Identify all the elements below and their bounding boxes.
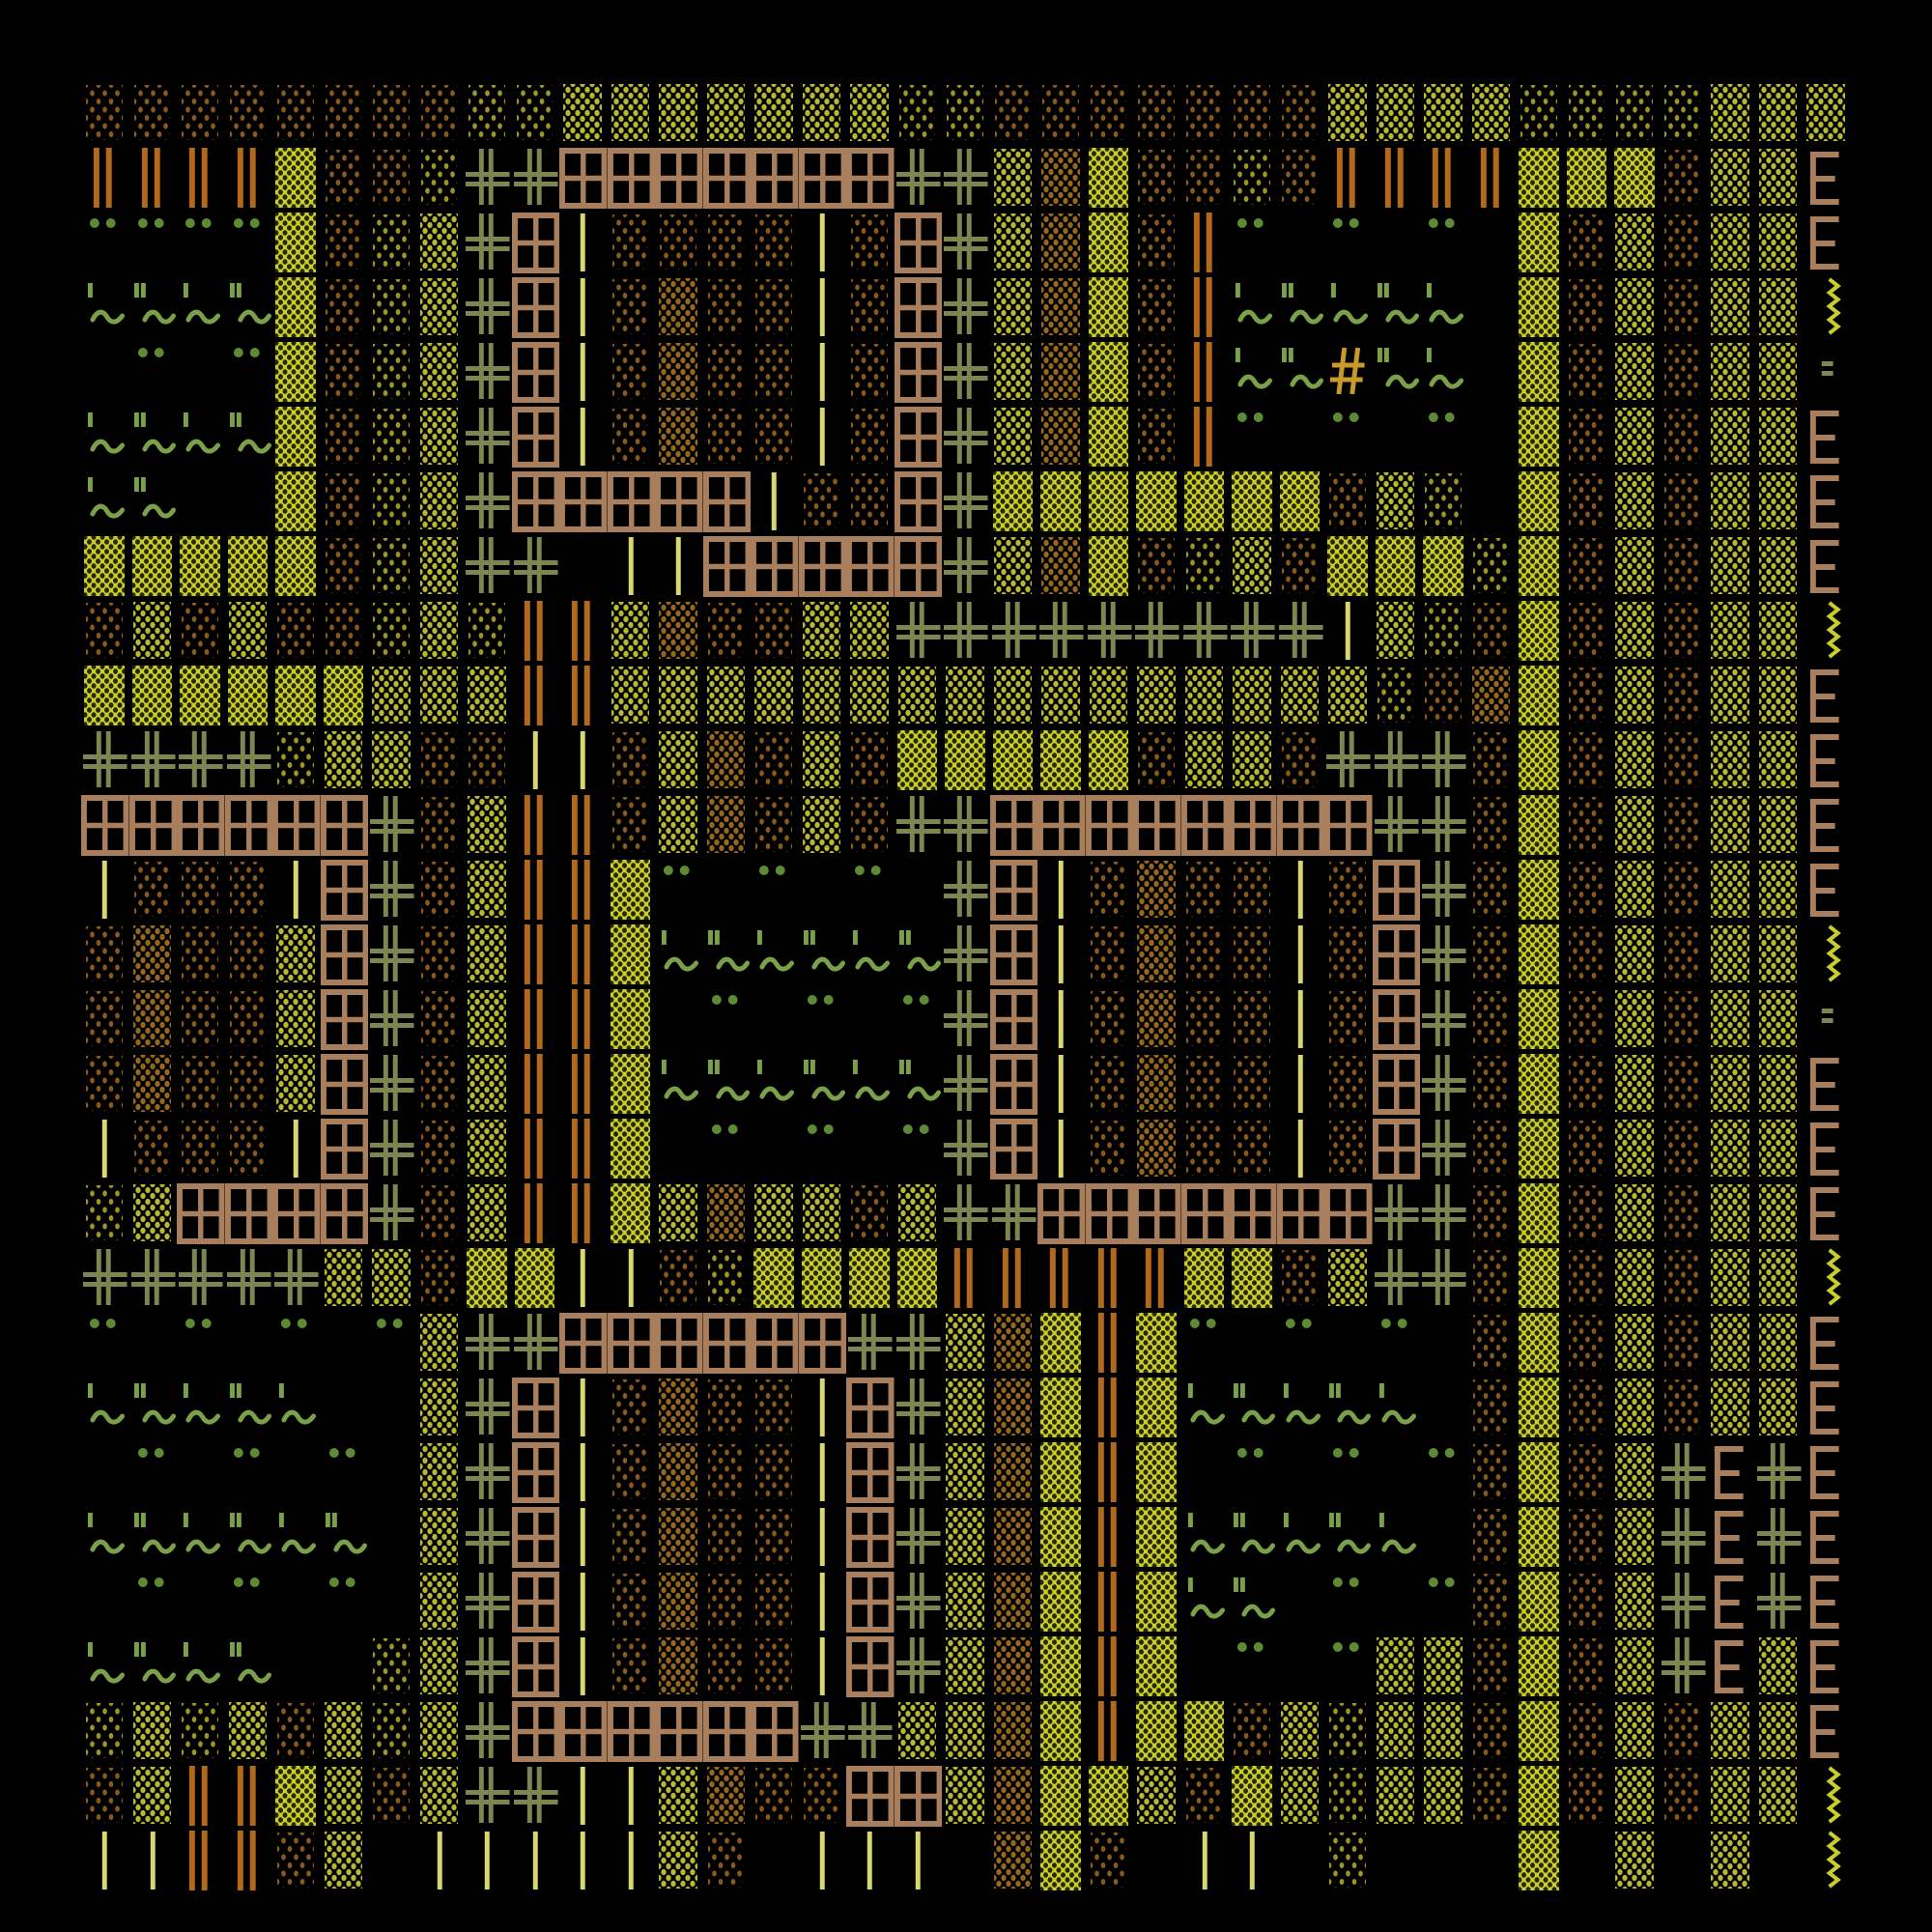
window-pane-tan-glyph	[1133, 1181, 1181, 1246]
window-pane-tan-glyph	[81, 793, 129, 858]
dots-sparse-brown-glyph	[1086, 923, 1134, 987]
dots-sparse-olive-glyph	[464, 599, 512, 664]
dots-sparse-brown-glyph	[1564, 469, 1612, 534]
wave-tick-tilde-glyph	[1181, 1505, 1230, 1570]
dots-sparse-brown-glyph	[608, 1440, 656, 1505]
dots-sparse-brown-glyph	[1420, 664, 1468, 728]
dots-med-yellow-glyph	[799, 664, 847, 728]
wave-doubletick-tilde-glyph	[1229, 1570, 1277, 1634]
double-cross-olive-glyph	[990, 599, 1038, 664]
dots-med-yellow-glyph	[1611, 1440, 1660, 1505]
empty-cell	[895, 858, 943, 923]
pin-bar-yellow-glyph	[559, 405, 608, 469]
block-dense-yellow-glyph	[1133, 1570, 1181, 1634]
dots-med-brown-glyph	[990, 1634, 1038, 1699]
double-bar-orange-glyph	[559, 793, 608, 858]
wave-doubletick-tilde-glyph	[703, 923, 752, 987]
dots-med-yellow-glyph	[464, 793, 512, 858]
dots-med-yellow-glyph	[1707, 858, 1755, 923]
block-dense-yellow-glyph	[608, 923, 656, 987]
dot-pair-green-glyph	[895, 987, 943, 1052]
wave-tick-tilde-glyph	[177, 1634, 225, 1699]
dots-med-yellow-glyph	[1611, 211, 1660, 275]
dots-sparse-olive-glyph	[368, 275, 416, 340]
dots-sparse-brown-glyph	[1086, 1829, 1134, 1893]
window-pane-tan-glyph	[1373, 858, 1421, 923]
dots-sparse-brown-glyph	[1660, 923, 1708, 987]
window-pane-tan-glyph	[703, 1699, 752, 1764]
dots-sparse-brown-glyph	[1660, 858, 1708, 923]
window-pane-tan-glyph	[895, 469, 943, 534]
dots-med-brown-glyph	[129, 1052, 178, 1117]
wave-tick-tilde-glyph	[272, 1505, 321, 1570]
pin-bar-yellow-glyph	[559, 728, 608, 793]
double-bar-orange-glyph	[1420, 146, 1468, 211]
double-cross-olive-glyph	[464, 211, 512, 275]
dots-med-yellow-glyph	[1707, 1829, 1755, 1893]
empty-cell	[1277, 1570, 1325, 1634]
dot-pair-green-glyph	[751, 858, 799, 923]
dots-sparse-brown-glyph	[751, 1376, 799, 1440]
block-dense-yellow-glyph	[272, 211, 321, 275]
pin-bar-yellow-glyph	[1277, 1117, 1325, 1181]
dots-sparse-brown-glyph	[1133, 211, 1181, 275]
block-dense-yellow-glyph	[225, 534, 273, 599]
dots-sparse-brown-glyph	[608, 340, 656, 405]
dots-sparse-brown-glyph	[416, 1181, 465, 1246]
window-partial-tan-glyph	[1803, 1376, 1851, 1440]
double-cross-olive-glyph	[1755, 1440, 1804, 1505]
window-pane-tan-glyph	[990, 858, 1038, 923]
hash-gold-glyph	[1324, 340, 1373, 405]
dots-med-yellow-glyph	[942, 1505, 990, 1570]
dots-med-yellow-glyph	[1611, 1246, 1660, 1311]
dots-med-brown-glyph	[1037, 534, 1086, 599]
window-pane-tan-glyph	[990, 1052, 1038, 1117]
window-pane-tan-glyph	[799, 534, 847, 599]
wave-tick-tilde-glyph	[1181, 1376, 1230, 1440]
dot-pair-green-glyph	[177, 1311, 225, 1376]
window-pane-tan-glyph	[751, 534, 799, 599]
dots-med-yellow-glyph	[751, 81, 799, 146]
double-cross-olive-glyph	[129, 728, 178, 793]
dots-med-yellow-glyph	[1181, 728, 1230, 793]
dots-sparse-brown-glyph	[1564, 1246, 1612, 1311]
wave-tick-tilde-glyph	[81, 1634, 129, 1699]
zigzag-yellow-glyph	[1803, 275, 1851, 340]
dots-sparse-olive-glyph	[81, 1181, 129, 1246]
window-pane-tan-glyph	[1229, 793, 1277, 858]
double-cross-olive-glyph	[1660, 1634, 1708, 1699]
empty-cell	[655, 987, 703, 1052]
wave-tick-tilde-glyph	[1373, 1505, 1421, 1570]
zigzag-yellow-glyph	[1803, 599, 1851, 664]
double-bar-orange-glyph	[512, 923, 560, 987]
dots-med-yellow-glyph	[1611, 340, 1660, 405]
window-pane-tan-glyph	[895, 405, 943, 469]
dots-med-brown-glyph	[655, 1570, 703, 1634]
window-pane-tan-glyph	[1373, 923, 1421, 987]
dots-med-yellow-glyph	[1755, 1634, 1804, 1699]
pin-bar-yellow-glyph	[559, 1376, 608, 1440]
dots-med-yellow-glyph	[1611, 987, 1660, 1052]
pin-bar-yellow-glyph	[1277, 923, 1325, 987]
dots-sparse-brown-glyph	[1229, 987, 1277, 1052]
double-cross-olive-glyph	[1181, 599, 1230, 664]
dots-sparse-brown-glyph	[1564, 1440, 1612, 1505]
window-partial-tan-glyph	[1803, 858, 1851, 923]
dots-sparse-brown-glyph	[416, 987, 465, 1052]
window-pane-tan-glyph	[512, 1699, 560, 1764]
dots-med-yellow-glyph	[1755, 211, 1804, 275]
wave-tick-tilde-glyph	[1373, 1376, 1421, 1440]
empty-cell	[703, 858, 752, 923]
block-dense-yellow-glyph	[1086, 534, 1134, 599]
dots-med-yellow-glyph	[1707, 1052, 1755, 1117]
pin-bar-yellow-glyph	[81, 858, 129, 923]
dots-sparse-brown-glyph	[1660, 275, 1708, 340]
wave-doubletick-tilde-glyph	[799, 1052, 847, 1117]
wave-tick-tilde-glyph	[751, 923, 799, 987]
double-cross-olive-glyph	[464, 1376, 512, 1440]
window-partial-tan-glyph	[1803, 405, 1851, 469]
dots-sparse-brown-glyph	[321, 534, 369, 599]
dots-med-yellow-glyph	[321, 1764, 369, 1829]
block-dense-yellow-glyph	[1037, 1699, 1086, 1764]
wave-tick-tilde-glyph	[177, 405, 225, 469]
pin-bar-yellow-glyph	[799, 1505, 847, 1570]
block-dense-yellow-glyph	[1516, 1311, 1564, 1376]
dots-med-yellow-glyph	[1373, 1764, 1421, 1829]
dots-sparse-brown-glyph	[81, 923, 129, 987]
pin-bar-yellow-glyph	[799, 1570, 847, 1634]
wave-doubletick-tilde-glyph	[895, 923, 943, 987]
dots-sparse-brown-glyph	[321, 146, 369, 211]
dots-med-yellow-glyph	[1611, 1052, 1660, 1117]
dots-med-brown-glyph	[1133, 858, 1181, 923]
window-pane-tan-glyph	[1373, 987, 1421, 1052]
dots-sparse-brown-glyph	[1564, 923, 1612, 987]
dots-med-yellow-glyph	[942, 1634, 990, 1699]
dots-sparse-brown-glyph	[1181, 987, 1230, 1052]
dots-sparse-brown-glyph	[321, 340, 369, 405]
pin-bar-yellow-glyph	[512, 728, 560, 793]
dots-sparse-brown-glyph	[177, 987, 225, 1052]
wave-doubletick-tilde-glyph	[1373, 275, 1421, 340]
dots-sparse-brown-glyph	[1468, 1052, 1517, 1117]
double-bar-orange-glyph	[1086, 1699, 1134, 1764]
dots-med-yellow-glyph	[1755, 1117, 1804, 1181]
dots-sparse-brown-glyph	[608, 1634, 656, 1699]
wave-tick-tilde-glyph	[751, 1052, 799, 1117]
wave-tick-tilde-glyph	[1229, 340, 1277, 405]
block-dense-yellow-glyph	[1086, 469, 1134, 534]
empty-cell	[368, 1376, 416, 1440]
window-pane-tan-glyph	[703, 534, 752, 599]
dots-sparse-brown-glyph	[1133, 340, 1181, 405]
double-cross-olive-glyph	[1373, 793, 1421, 858]
dots-sparse-brown-glyph	[1086, 858, 1134, 923]
dots-med-yellow-glyph	[1707, 1376, 1755, 1440]
wave-tick-tilde-glyph	[81, 1376, 129, 1440]
double-cross-olive-glyph	[464, 1505, 512, 1570]
block-dense-yellow-glyph	[1516, 1505, 1564, 1570]
block-dense-yellow-glyph	[225, 664, 273, 728]
block-dense-yellow-glyph	[1420, 534, 1468, 599]
empty-cell	[272, 1634, 321, 1699]
double-cross-olive-glyph	[895, 793, 943, 858]
pin-bar-yellow-glyph	[1037, 1052, 1086, 1117]
window-partial-tan-glyph	[1803, 146, 1851, 211]
empty-cell	[751, 1829, 799, 1893]
dots-sparse-brown-glyph	[129, 1117, 178, 1181]
block-dense-yellow-glyph	[272, 340, 321, 405]
double-cross-olive-glyph	[1420, 1052, 1468, 1117]
dots-med-yellow-glyph	[1755, 728, 1804, 793]
dots-sparse-brown-glyph	[1229, 1052, 1277, 1117]
dots-med-yellow-glyph	[1707, 534, 1755, 599]
empty-cell	[1373, 1440, 1421, 1505]
wave-doubletick-tilde-glyph	[1373, 340, 1421, 405]
dots-med-yellow-glyph	[225, 1699, 273, 1764]
dots-med-brown-glyph	[655, 275, 703, 340]
dots-med-yellow-glyph	[368, 1246, 416, 1311]
dots-sparse-brown-glyph	[368, 1764, 416, 1829]
dots-med-yellow-glyph	[655, 793, 703, 858]
block-dense-yellow-glyph	[1516, 1570, 1564, 1634]
dots-med-yellow-glyph	[416, 1440, 465, 1505]
dots-sparse-brown-glyph	[225, 1117, 273, 1181]
double-cross-olive-glyph	[512, 1311, 560, 1376]
window-pane-tan-glyph	[846, 1764, 895, 1829]
pin-bar-yellow-glyph	[895, 1829, 943, 1893]
double-bar-orange-glyph	[129, 146, 178, 211]
double-cross-olive-glyph	[942, 211, 990, 275]
dots-sparse-brown-glyph	[368, 146, 416, 211]
window-pane-tan-glyph	[990, 793, 1038, 858]
dots-sparse-brown-glyph	[1468, 1181, 1517, 1246]
pin-bar-yellow-glyph	[81, 1117, 129, 1181]
block-dense-yellow-glyph	[608, 987, 656, 1052]
dots-sparse-brown-glyph	[751, 275, 799, 340]
dots-sparse-olive-glyph	[416, 146, 465, 211]
double-cross-olive-glyph	[1324, 728, 1373, 793]
dots-sparse-brown-glyph	[1181, 81, 1230, 146]
dots-med-brown-glyph	[1037, 146, 1086, 211]
double-cross-olive-glyph	[942, 469, 990, 534]
dots-med-brown-glyph	[990, 1829, 1038, 1893]
window-pane-tan-glyph	[655, 1311, 703, 1376]
double-bar-orange-glyph	[512, 1181, 560, 1246]
dots-sparse-brown-glyph	[321, 469, 369, 534]
dots-sparse-brown-glyph	[416, 793, 465, 858]
block-dense-yellow-glyph	[1516, 405, 1564, 469]
window-pane-tan-glyph	[846, 1505, 895, 1570]
dots-med-yellow-glyph	[846, 81, 895, 146]
double-bar-orange-glyph	[177, 1764, 225, 1829]
double-cross-olive-glyph	[1037, 599, 1086, 664]
block-dense-yellow-glyph	[1516, 1052, 1564, 1117]
dots-sparse-olive-glyph	[272, 728, 321, 793]
dots-sparse-brown-glyph	[799, 1764, 847, 1829]
double-bar-orange-glyph	[1133, 1246, 1181, 1311]
dot-pair-green-glyph	[1324, 1634, 1373, 1699]
dots-sparse-brown-glyph	[846, 340, 895, 405]
block-dense-yellow-glyph	[1516, 664, 1564, 728]
window-pane-tan-glyph	[1229, 1181, 1277, 1246]
dots-sparse-brown-glyph	[177, 599, 225, 664]
wave-doubletick-tilde-glyph	[225, 405, 273, 469]
dots-med-yellow-glyph	[1755, 1311, 1804, 1376]
dots-sparse-olive-glyph	[1564, 81, 1612, 146]
dots-med-yellow-glyph	[1755, 1181, 1804, 1246]
dots-med-yellow-glyph	[846, 599, 895, 664]
dots-sparse-brown-glyph	[1468, 858, 1517, 923]
dots-med-yellow-glyph	[464, 1117, 512, 1181]
double-bar-orange-glyph	[559, 599, 608, 664]
dots-sparse-brown-glyph	[751, 1570, 799, 1634]
double-cross-olive-glyph	[942, 146, 990, 211]
dots-med-yellow-glyph	[655, 728, 703, 793]
double-cross-olive-glyph	[1660, 1440, 1708, 1505]
pin-bar-yellow-glyph	[1037, 987, 1086, 1052]
double-cross-olive-glyph	[1277, 599, 1325, 664]
dots-sparse-brown-glyph	[799, 469, 847, 534]
window-pane-tan-glyph	[321, 923, 369, 987]
window-pane-tan-glyph	[1277, 1181, 1325, 1246]
block-dense-yellow-glyph	[1516, 1829, 1564, 1893]
dots-med-yellow-glyph	[1707, 987, 1755, 1052]
dot-pair-green-glyph	[225, 1570, 273, 1634]
dots-med-brown-glyph	[655, 340, 703, 405]
dots-sparse-brown-glyph	[1660, 1311, 1708, 1376]
double-bar-orange-glyph	[1181, 275, 1230, 340]
pin-bar-yellow-glyph	[1181, 1829, 1230, 1893]
window-pane-tan-glyph	[512, 1634, 560, 1699]
dots-sparse-brown-glyph	[846, 275, 895, 340]
double-cross-olive-glyph	[512, 534, 560, 599]
block-dense-yellow-glyph	[1181, 1246, 1230, 1311]
dots-med-yellow-glyph	[703, 81, 752, 146]
window-partial-tan-glyph	[1803, 534, 1851, 599]
dots-med-yellow-glyph	[1707, 405, 1755, 469]
dots-sparse-brown-glyph	[1324, 1117, 1373, 1181]
dots-med-yellow-glyph	[799, 728, 847, 793]
window-pane-tan-glyph	[1133, 793, 1181, 858]
block-dense-yellow-glyph	[129, 664, 178, 728]
window-pane-tan-glyph	[990, 1117, 1038, 1181]
dots-med-yellow-glyph	[416, 405, 465, 469]
dots-sparse-olive-glyph	[1229, 146, 1277, 211]
dots-med-yellow-glyph	[942, 1764, 990, 1829]
pin-bar-yellow-glyph	[655, 534, 703, 599]
block-dense-yellow-glyph	[1229, 469, 1277, 534]
empty-cell	[1420, 1505, 1468, 1570]
dots-med-yellow-glyph	[1755, 599, 1804, 664]
double-cross-olive-glyph	[895, 599, 943, 664]
dots-sparse-brown-glyph	[1564, 1570, 1612, 1634]
block-dense-yellow-glyph	[1086, 1764, 1134, 1829]
dot-pair-green-glyph	[1324, 405, 1373, 469]
double-cross-olive-glyph	[368, 1052, 416, 1117]
dot-pair-green-glyph	[799, 987, 847, 1052]
dots-med-yellow-glyph	[416, 664, 465, 728]
window-pane-tan-glyph	[1373, 1117, 1421, 1181]
block-dense-yellow-glyph	[1373, 534, 1421, 599]
dots-sparse-brown-glyph	[1564, 1117, 1612, 1181]
double-cross-olive-glyph	[1420, 1181, 1468, 1246]
pin-bar-yellow-glyph	[1037, 858, 1086, 923]
dots-med-yellow-glyph	[321, 728, 369, 793]
double-bar-orange-glyph	[990, 1246, 1038, 1311]
double-cross-olive-glyph	[1133, 599, 1181, 664]
block-dense-yellow-glyph	[1037, 1570, 1086, 1634]
dots-sparse-brown-glyph	[1133, 405, 1181, 469]
dots-med-yellow-glyph	[1420, 1764, 1468, 1829]
wave-tick-tilde-glyph	[1277, 1376, 1325, 1440]
block-dense-yellow-glyph	[1516, 469, 1564, 534]
window-partial-tan-glyph	[1707, 1570, 1755, 1634]
dots-med-yellow-glyph	[1611, 728, 1660, 793]
dot-pair-green-glyph	[129, 1440, 178, 1505]
dots-sparse-brown-glyph	[1564, 1052, 1612, 1117]
double-cross-olive-glyph	[464, 534, 512, 599]
dots-sparse-brown-glyph	[272, 81, 321, 146]
dots-med-yellow-glyph	[1707, 664, 1755, 728]
wave-tick-tilde-glyph	[655, 923, 703, 987]
pin-bar-yellow-glyph	[799, 1376, 847, 1440]
dots-med-yellow-glyph	[703, 664, 752, 728]
dots-sparse-brown-glyph	[751, 793, 799, 858]
double-cross-olive-glyph	[895, 1311, 943, 1376]
dots-sparse-brown-glyph	[1133, 81, 1181, 146]
double-cross-olive-glyph	[1755, 1570, 1804, 1634]
window-partial-tan-glyph	[1803, 1052, 1851, 1117]
empty-cell	[1468, 1829, 1517, 1893]
dots-sparse-olive-glyph	[942, 81, 990, 146]
dots-sparse-olive-glyph	[1516, 81, 1564, 146]
dots-sparse-brown-glyph	[1564, 599, 1612, 664]
dot-pair-green-glyph	[129, 340, 178, 405]
double-bar-orange-glyph	[512, 987, 560, 1052]
double-cross-olive-glyph	[464, 1764, 512, 1829]
double-cross-olive-glyph	[1420, 1117, 1468, 1181]
block-dense-yellow-glyph	[1037, 1440, 1086, 1505]
double-cross-olive-glyph	[942, 987, 990, 1052]
dots-med-yellow-glyph	[1229, 728, 1277, 793]
window-pane-tan-glyph	[512, 1376, 560, 1440]
block-dense-yellow-glyph	[1516, 923, 1564, 987]
dots-med-yellow-glyph	[1611, 793, 1660, 858]
dots-sparse-brown-glyph	[703, 405, 752, 469]
pin-bar-yellow-glyph	[799, 1634, 847, 1699]
wave-doubletick-tilde-glyph	[1277, 275, 1325, 340]
dots-med-yellow-glyph	[1611, 858, 1660, 923]
dots-med-yellow-glyph	[1324, 1246, 1373, 1311]
dots-med-brown-glyph	[990, 1376, 1038, 1440]
wave-doubletick-tilde-glyph	[225, 1376, 273, 1440]
window-pane-tan-glyph	[1324, 1181, 1373, 1246]
dots-sparse-brown-glyph	[1468, 1246, 1517, 1311]
double-cross-olive-glyph	[942, 1052, 990, 1117]
dots-med-yellow-glyph	[1611, 275, 1660, 340]
dots-sparse-brown-glyph	[703, 275, 752, 340]
double-cross-olive-glyph	[942, 793, 990, 858]
wave-tick-tilde-glyph	[1181, 1570, 1230, 1634]
double-dash-olive-glyph	[1803, 987, 1851, 1052]
double-bar-orange-glyph	[1181, 405, 1230, 469]
dot-pair-green-glyph	[225, 340, 273, 405]
